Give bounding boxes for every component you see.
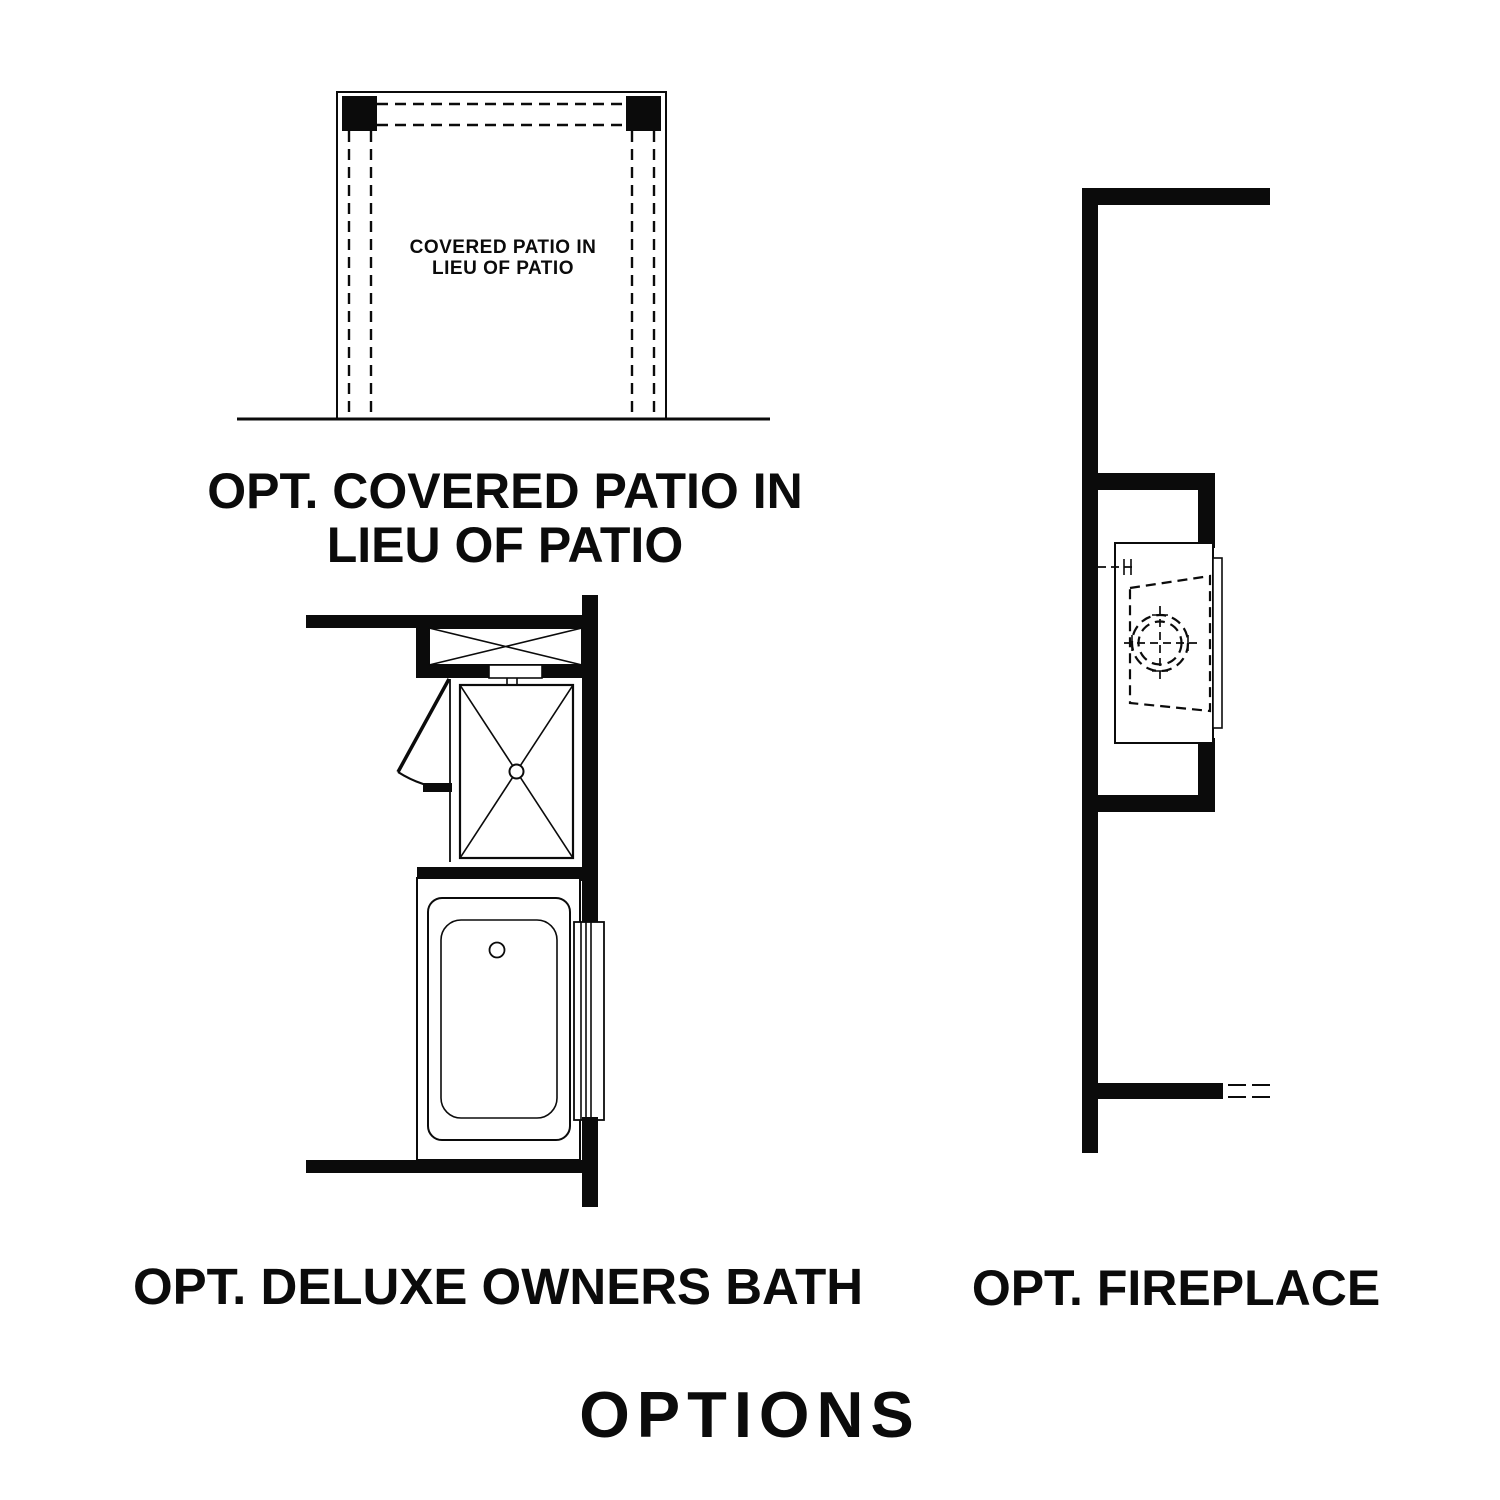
- wall-opening-break-lines: [1228, 1085, 1270, 1097]
- deluxe-owners-bath-diagram: [306, 595, 604, 1207]
- fireplace-top-wall: [1082, 188, 1270, 205]
- window-frame: [574, 922, 604, 1120]
- patio-caption-line1: OPT. COVERED PATIO IN: [205, 464, 805, 518]
- tub-drain: [490, 943, 505, 958]
- patio-caption: OPT. COVERED PATIO IN LIEU OF PATIO: [205, 464, 805, 572]
- patio-post-left: [342, 96, 377, 131]
- shower-niche-ledge: [489, 665, 542, 678]
- niche-top-wall: [1098, 473, 1215, 490]
- patio-label-line1: COVERED PATIO IN: [410, 237, 597, 258]
- fireplace-glass-front: [1213, 558, 1222, 728]
- door-leaf: [398, 679, 449, 772]
- door-jamb-stub: [423, 783, 452, 792]
- covered-patio-diagram: COVERED PATIO IN LIEU OF PATIO: [237, 92, 770, 419]
- shower-drain: [510, 765, 524, 779]
- shower: [460, 685, 573, 858]
- fireplace-diagram: [1082, 188, 1270, 1153]
- linen-cabinet: [429, 628, 582, 665]
- bath-right-wall-lower: [582, 1117, 598, 1207]
- floor-plan-options-sheet: COVERED PATIO IN LIEU OF PATIO: [0, 0, 1500, 1500]
- fireplace-caption: OPT. FIREPLACE: [926, 1261, 1426, 1315]
- niche-right-wall-upper: [1198, 473, 1215, 548]
- patio-caption-line2: LIEU OF PATIO: [205, 518, 805, 572]
- bath-door: [398, 679, 452, 792]
- bath-bottom-wall: [306, 1160, 583, 1173]
- bath-caption: OPT. DELUXE OWNERS BATH: [133, 1260, 783, 1314]
- patio-post-right: [626, 96, 661, 131]
- patio-label-line2: LIEU OF PATIO: [432, 258, 574, 279]
- fireplace-bottom-wall-stub: [1098, 1083, 1223, 1099]
- niche-bottom-wall: [1098, 795, 1215, 812]
- page-title: OPTIONS: [450, 1380, 1050, 1450]
- tub: [417, 878, 580, 1160]
- patio-roof-beam-dashed-lines: [377, 104, 626, 125]
- bath-window: [574, 922, 604, 1120]
- bath-top-wall: [306, 615, 598, 628]
- fireplace-left-wall: [1082, 188, 1098, 1153]
